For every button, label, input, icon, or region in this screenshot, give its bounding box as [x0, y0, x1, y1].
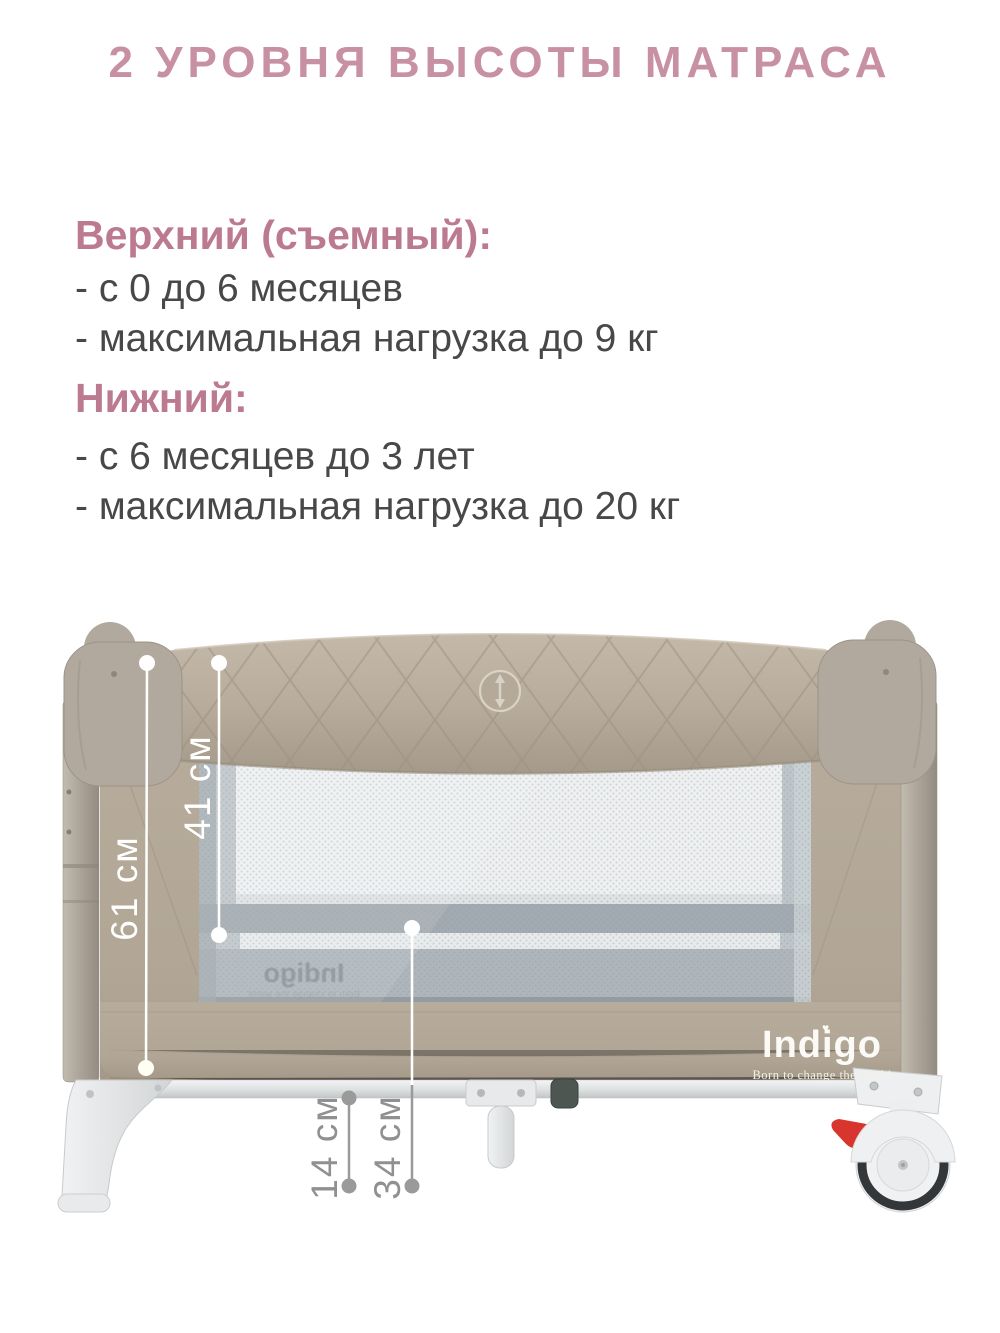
product-card: 2 УРОВНЯ ВЫСОТЫ МАТРАСА Верхний (съемный… — [0, 0, 1000, 1333]
heart-icon: ♥ — [822, 1021, 829, 1035]
measure-label-14: 14 см — [304, 1094, 346, 1199]
center-bracket — [466, 1080, 536, 1106]
crib-photo: 41 см 61 см 14 см 34 см Indigo ♥ Born to… — [0, 0, 1000, 1333]
brand-logo-mirrored: Indigo Born to change the world — [244, 958, 364, 999]
brand-tagline-mirrored: Born to change the world — [244, 989, 364, 999]
quilted-rail — [116, 634, 884, 774]
frame-clip — [551, 1079, 578, 1108]
brand-tagline: Born to change the world — [752, 1068, 892, 1083]
measure-label-61: 61 см — [104, 835, 146, 940]
crib-illustration — [0, 0, 1000, 1333]
left-foot — [58, 1194, 110, 1212]
left-corner-cap — [64, 622, 182, 786]
left-leg — [58, 1080, 172, 1212]
line-61 — [146, 663, 147, 1068]
center-support — [466, 1080, 536, 1168]
brand-logo: Indigo ♥ Born to change the world — [752, 1026, 892, 1083]
measure-label-41: 41 см — [177, 734, 219, 839]
right-corner-cap — [818, 620, 936, 784]
measure-label-34: 34 см — [367, 1094, 409, 1199]
up-down-arrow-icon — [480, 671, 520, 711]
brand-name-mirrored: Indigo — [244, 958, 364, 989]
center-leg-tube — [488, 1106, 514, 1168]
